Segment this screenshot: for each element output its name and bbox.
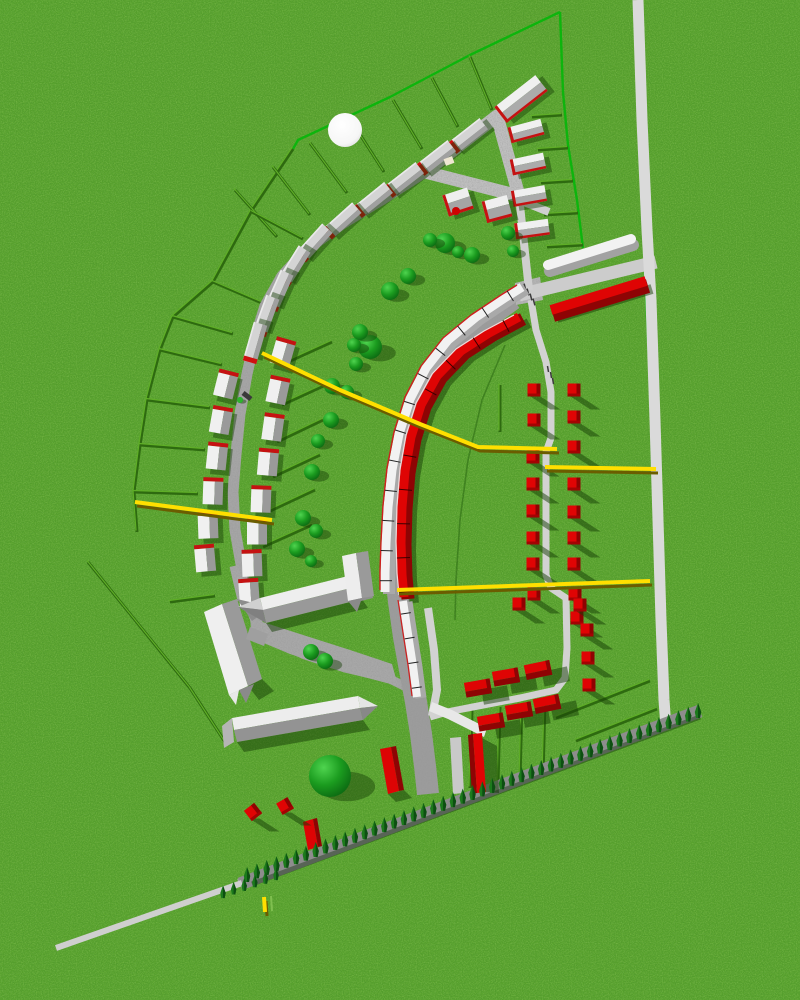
green-marker-tick-bottom xyxy=(271,896,272,911)
site-plan-3d-render xyxy=(0,0,800,1000)
yellow-marker-line-upper-east xyxy=(545,467,658,473)
car-green-dot xyxy=(237,397,243,403)
site-plan-canvas xyxy=(0,0,800,1000)
red-dot-marker xyxy=(452,207,460,215)
white-survey-sphere xyxy=(328,113,362,147)
